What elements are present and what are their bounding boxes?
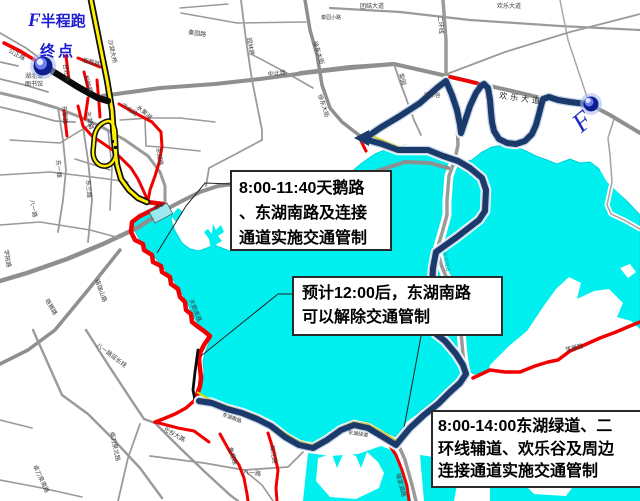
svg-text:图书馆: 图书馆 — [25, 80, 43, 88]
svg-text:欢乐谷: 欢乐谷 — [424, 91, 441, 99]
svg-text:团结大道: 团结大道 — [360, 2, 384, 10]
svg-text:秦园小路: 秦园小路 — [321, 14, 341, 21]
svg-text:欢乐大道: 欢乐大道 — [497, 2, 521, 10]
